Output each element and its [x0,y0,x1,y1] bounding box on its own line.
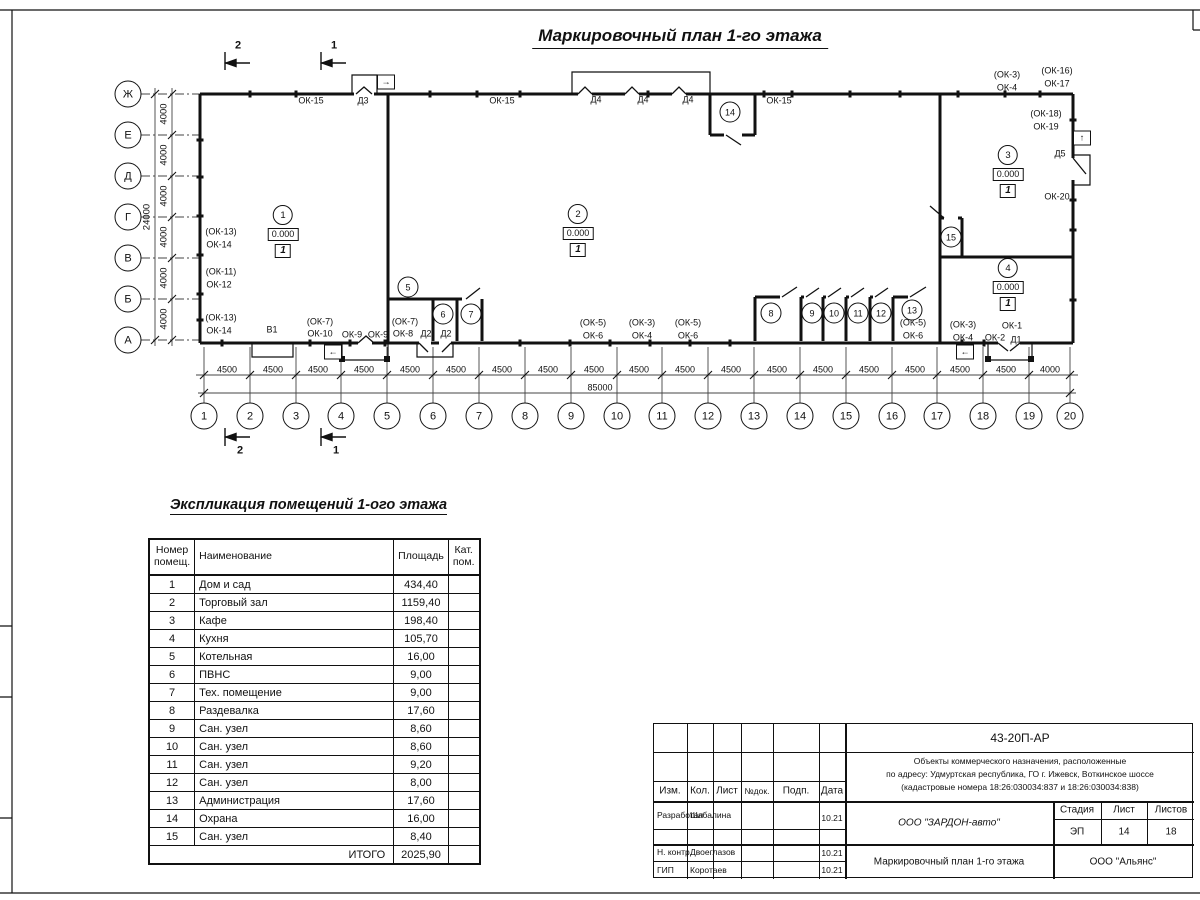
plan-label: ОК-20 [1044,193,1069,202]
room-number-cell: 3 [149,612,195,630]
room-name-cell: Кафе [195,612,394,630]
room-category-cell [448,666,479,684]
dimension-label: 4500 [217,366,237,375]
table-row: 13 Администрация 17,60 [149,792,480,810]
col-header-area: Площадь [394,539,449,575]
plan-label: ОК-17 [1044,80,1069,89]
plan-label: ОК-1 [1002,322,1022,331]
plan-label: (ОК-5) [580,319,606,328]
table-row: 8 Раздевалка 17,60 [149,702,480,720]
total-row: ИТОГО 2025,90 [149,846,480,865]
axis-bubble: 4 [328,403,355,430]
name-ncontrol: Двоеглазов [690,847,735,857]
plan-label: Д2 [420,330,431,339]
axis-bubble: 9 [558,403,585,430]
plan-label: (ОК-16) [1041,67,1072,76]
room-marker: 4 0.000 1 [993,258,1024,311]
col-header-category: Кат. пом. [448,539,479,575]
room-number-cell: 5 [149,648,195,666]
dimension-label: 4500 [905,366,925,375]
room-number: 3 [998,145,1018,165]
dimension-label: 4500 [584,366,604,375]
sheet-value: 14 [1118,827,1129,838]
project-line-1: Объекты коммерческого назначения, распол… [914,756,1126,766]
room-number: 2 [568,204,588,224]
table-row: 12 Сан. узел 8,00 [149,774,480,792]
table-row: 9 Сан. узел 8,60 [149,720,480,738]
room-area-cell: 16,00 [394,810,449,828]
dimension-label: 4500 [813,366,833,375]
axis-bubble: 19 [1016,403,1043,430]
window-ticks [197,91,1077,347]
room-category-cell [448,774,479,792]
col-header-name: Наименование [195,539,394,575]
dimension-label: 4000 [159,185,169,206]
total-label: ИТОГО [149,846,394,865]
dimension-label: 4500 [492,366,512,375]
room-number-cell: 4 [149,630,195,648]
plan-label: ОК-4 [632,332,652,341]
plan-label: Д3 [357,97,368,106]
plan-label: (ОК-3) [629,319,655,328]
table-row: 10 Сан. узел 8,60 [149,738,480,756]
room-name-cell: Дом и сад [195,575,394,594]
dimension-label: 4500 [629,366,649,375]
room-category-cell [448,720,479,738]
exit-arrow-icon: ← [324,345,342,360]
total-area: 2025,90 [394,846,449,865]
room-name-cell: Сан. узел [195,774,394,792]
explication-table: Номер помещ. Наименование Площадь Кат. п… [148,538,481,865]
exit-arrow-icon: ← [956,345,974,360]
title-block: Изм. Кол. Лист №док. Подп. Дата Разработ… [653,723,1193,878]
stage-value: ЭП [1070,827,1084,838]
plan-label: (ОК-7) [392,318,418,327]
room-number: 4 [998,258,1018,278]
room-number-cell: 7 [149,684,195,702]
axis-bubble: 13 [741,403,768,430]
room-number: 5 [398,277,419,298]
table-row: 5 Котельная 16,00 [149,648,480,666]
dimension-label: 4500 [950,366,970,375]
room-number-cell: 15 [149,828,195,846]
room-number: 12 [871,303,892,324]
room-name-cell: Сан. узел [195,828,394,846]
room-category-cell [448,648,479,666]
total-category [448,846,479,865]
room-name-cell: Раздевалка [195,702,394,720]
room-name-cell: Торговый зал [195,594,394,612]
room-marker: 1 0.000 1 [268,205,299,258]
dimension-label: 4500 [996,366,1016,375]
floor-type-mark: 1 [570,243,586,257]
axis-bubble: 12 [695,403,722,430]
table-row: 15 Сан. узел 8,40 [149,828,480,846]
room-number-cell: 14 [149,810,195,828]
dimension-label: 4500 [767,366,787,375]
axis-bubble: 5 [374,403,401,430]
plan-label: ОК-6 [583,332,603,341]
room-area-cell: 17,60 [394,792,449,810]
dimension-label: 24000 [142,204,152,230]
plan-label: 2 [237,446,243,457]
floor-type-mark: 1 [1000,184,1016,198]
room-category-cell [448,810,479,828]
role-gip: ГИП [657,865,674,875]
plan-label: ОК-15 [489,97,514,106]
col-header-number: Номер помещ. [149,539,195,575]
axis-bubble: 3 [283,403,310,430]
room-area-cell: 8,60 [394,738,449,756]
col-data: Дата [821,786,843,797]
plan-label: (ОК-3) [994,71,1020,80]
plan-label: (ОК-13) [205,228,236,237]
room-number-cell: 9 [149,720,195,738]
room-area-cell: 8,60 [394,720,449,738]
dimension-label: 4500 [538,366,558,375]
room-area-cell: 9,00 [394,684,449,702]
room-number: 11 [848,303,869,324]
plan-label: В1 [266,326,277,335]
plan-label: ОК-12 [206,281,231,290]
dimension-label: 4000 [1040,366,1060,375]
dimension-label: 4500 [446,366,466,375]
dimension-label: 4500 [354,366,374,375]
axis-bubble: 11 [649,403,676,430]
col-ndoc: №док. [745,786,770,796]
room-number-cell: 2 [149,594,195,612]
dimension-label: 4500 [675,366,695,375]
room-name-cell: Сан. узел [195,720,394,738]
room-number: 10 [824,303,845,324]
plan-label: ОК-15 [766,97,791,106]
room-number: 6 [433,304,454,325]
name-developer: Шабалина [690,810,731,820]
dimension-label: 4500 [721,366,741,375]
axis-bubble: Ж [115,81,142,108]
dimension-label: 4500 [263,366,283,375]
plan-label: (ОК-5) [675,319,701,328]
date-ncontrol: 10.21 [821,848,842,858]
axis-bubble: Е [115,122,142,149]
room-name-cell: ПВНС [195,666,394,684]
room-number-cell: 1 [149,575,195,594]
room-name-cell: Администрация [195,792,394,810]
porches [252,72,1090,362]
room-name-cell: Котельная [195,648,394,666]
room-area-cell: 8,00 [394,774,449,792]
room-name-cell: Охрана [195,810,394,828]
room-number-cell: 13 [149,792,195,810]
room-category-cell [448,684,479,702]
plan-label: ОК-19 [1033,123,1058,132]
room-category-cell [448,612,479,630]
table-row: 6 ПВНС 9,00 [149,666,480,684]
walls [200,94,1073,343]
org-name: ООО "ЗАРДОН-авто" [898,818,1000,829]
room-category-cell [448,630,479,648]
plan-label: ОК-14 [206,327,231,336]
plan-label: ОК-2 [985,334,1005,343]
doc-number: 43-20П-АР [990,731,1049,745]
plan-label: ОК-15 [298,97,323,106]
room-number-cell: 10 [149,738,195,756]
room-number: 13 [902,300,923,321]
floor-type-mark: 1 [1000,297,1016,311]
plan-label: 1 [333,446,339,457]
axis-bubble: 15 [833,403,860,430]
plan-label: (ОК-7) [307,318,333,327]
room-category-cell [448,575,479,594]
room-category-cell [448,594,479,612]
axis-bubble: 18 [970,403,997,430]
sheet-title: Маркировочный план 1-го этажа [874,857,1024,868]
date-developer: 10.21 [821,813,842,823]
axis-bubble: 7 [466,403,493,430]
room-number-cell: 11 [149,756,195,774]
table-row: 14 Охрана 16,00 [149,810,480,828]
room-area-cell: 198,40 [394,612,449,630]
room-number-cell: 12 [149,774,195,792]
dimension-label: 4000 [159,267,169,288]
axis-bubble: Б [115,286,142,313]
axis-bubble: В [115,245,142,272]
sheets-value: 18 [1165,827,1176,838]
plan-label: (ОК-3) [950,321,976,330]
axis-bubble: 17 [924,403,951,430]
room-number: 15 [941,227,962,248]
project-line-3: (кадастровые номера 18:26:030034:837 и 1… [901,782,1139,792]
plan-label: ОК-9 [342,331,362,340]
plan-label: ОК-4 [953,334,973,343]
room-category-cell [448,702,479,720]
room-number: 1 [273,205,293,225]
role-ncontrol: Н. контр. [657,847,692,857]
col-izm: Изм. [659,786,680,797]
axis-bubble: 14 [787,403,814,430]
plan-label: 2 [235,41,241,52]
axis-bubble: 8 [512,403,539,430]
date-gip: 10.21 [821,865,842,875]
room-area-cell: 105,70 [394,630,449,648]
dimension-label: 4000 [159,103,169,124]
plan-label: (ОК-18) [1030,110,1061,119]
room-number: 9 [802,303,823,324]
plan-label: ОК-14 [206,241,231,250]
room-category-cell [448,792,479,810]
room-name-cell: Тех. помещение [195,684,394,702]
floor-type-mark: 1 [275,244,291,258]
project-line-2: по адресу: Удмуртская республика, ГО г. … [886,769,1154,779]
room-area-cell: 16,00 [394,648,449,666]
room-area-cell: 1159,40 [394,594,449,612]
table-row: 11 Сан. узел 9,20 [149,756,480,774]
plan-label: ОК-6 [678,332,698,341]
room-name-cell: Сан. узел [195,738,394,756]
room-category-cell [448,756,479,774]
axis-bubble: 1 [191,403,218,430]
col-kol: Кол. [690,786,710,797]
elevation-mark: 0.000 [993,281,1024,294]
axis-bubble: 16 [879,403,906,430]
dimension-label: 4500 [859,366,879,375]
dimension-label: 85000 [587,384,612,393]
contractor-name: ООО "Альянс" [1090,857,1157,868]
room-category-cell [448,828,479,846]
dimension-label: 4000 [159,144,169,165]
axis-bubble: Д [115,163,142,190]
axis-bubble: 10 [604,403,631,430]
plan-label: Д4 [590,96,601,105]
axis-bubble: 2 [237,403,264,430]
room-area-cell: 9,00 [394,666,449,684]
name-gip: Коротаев [690,865,727,875]
dimension-label: 4500 [308,366,328,375]
table-row: 3 Кафе 198,40 [149,612,480,630]
plan-label: ОК-10 [307,330,332,339]
dimension-label: 4000 [159,308,169,329]
table-row: 7 Тех. помещение 9,00 [149,684,480,702]
exit-arrow-icon: → [377,75,395,90]
stage-label: Стадия [1060,805,1094,816]
room-number: 7 [461,304,482,325]
elevation-mark: 0.000 [268,228,299,241]
explication-title: Экспликация помещений 1-ого этажа [170,497,447,515]
room-marker: 3 0.000 1 [993,145,1024,198]
plan-label: ОК-8 [393,330,413,339]
sheet-label: Лист [1113,805,1135,816]
plan-label: ОК-6 [903,332,923,341]
room-number-cell: 6 [149,666,195,684]
table-row: 1 Дом и сад 434,40 [149,575,480,594]
axis-bubble: А [115,327,142,354]
drawing-sheet: Маркировочный план 1-го этажа ОК-15Д3ОК-… [0,0,1200,900]
axis-bubble: Г [115,204,142,231]
room-area-cell: 17,60 [394,702,449,720]
plan-label: Д1 [1010,336,1021,345]
room-area-cell: 434,40 [394,575,449,594]
elevation-mark: 0.000 [993,168,1024,181]
room-number: 14 [720,102,741,123]
table-row: 4 Кухня 105,70 [149,630,480,648]
table-row: 2 Торговый зал 1159,40 [149,594,480,612]
dimension-label: 4000 [159,226,169,247]
plan-label: Д4 [637,96,648,105]
plan-label: Д2 [440,330,451,339]
exit-arrow-icon: ↑ [1073,131,1091,146]
sheet-main-title: Маркировочный план 1-го этажа [532,26,828,49]
plan-label: (ОК-11) [206,268,237,277]
room-marker: 2 0.000 1 [563,204,594,257]
plan-label: Д5 [1054,150,1065,159]
elevation-mark: 0.000 [563,227,594,240]
room-area-cell: 8,40 [394,828,449,846]
room-name-cell: Сан. узел [195,756,394,774]
col-list: Лист [716,786,738,797]
room-number-cell: 8 [149,702,195,720]
col-podp: Подп. [783,786,810,797]
plan-label: 1 [331,41,337,52]
plan-label: (ОК-13) [205,314,236,323]
axis-bubble: 6 [420,403,447,430]
dimension-label: 4500 [400,366,420,375]
room-number: 8 [761,303,782,324]
plan-label: Д4 [682,96,693,105]
sheets-label: Листов [1155,805,1188,816]
room-category-cell [448,738,479,756]
room-area-cell: 9,20 [394,756,449,774]
axis-bubble: 20 [1057,403,1084,430]
room-name-cell: Кухня [195,630,394,648]
plan-label: ОК-9 [368,331,388,340]
plan-label: ОК-4 [997,84,1017,93]
